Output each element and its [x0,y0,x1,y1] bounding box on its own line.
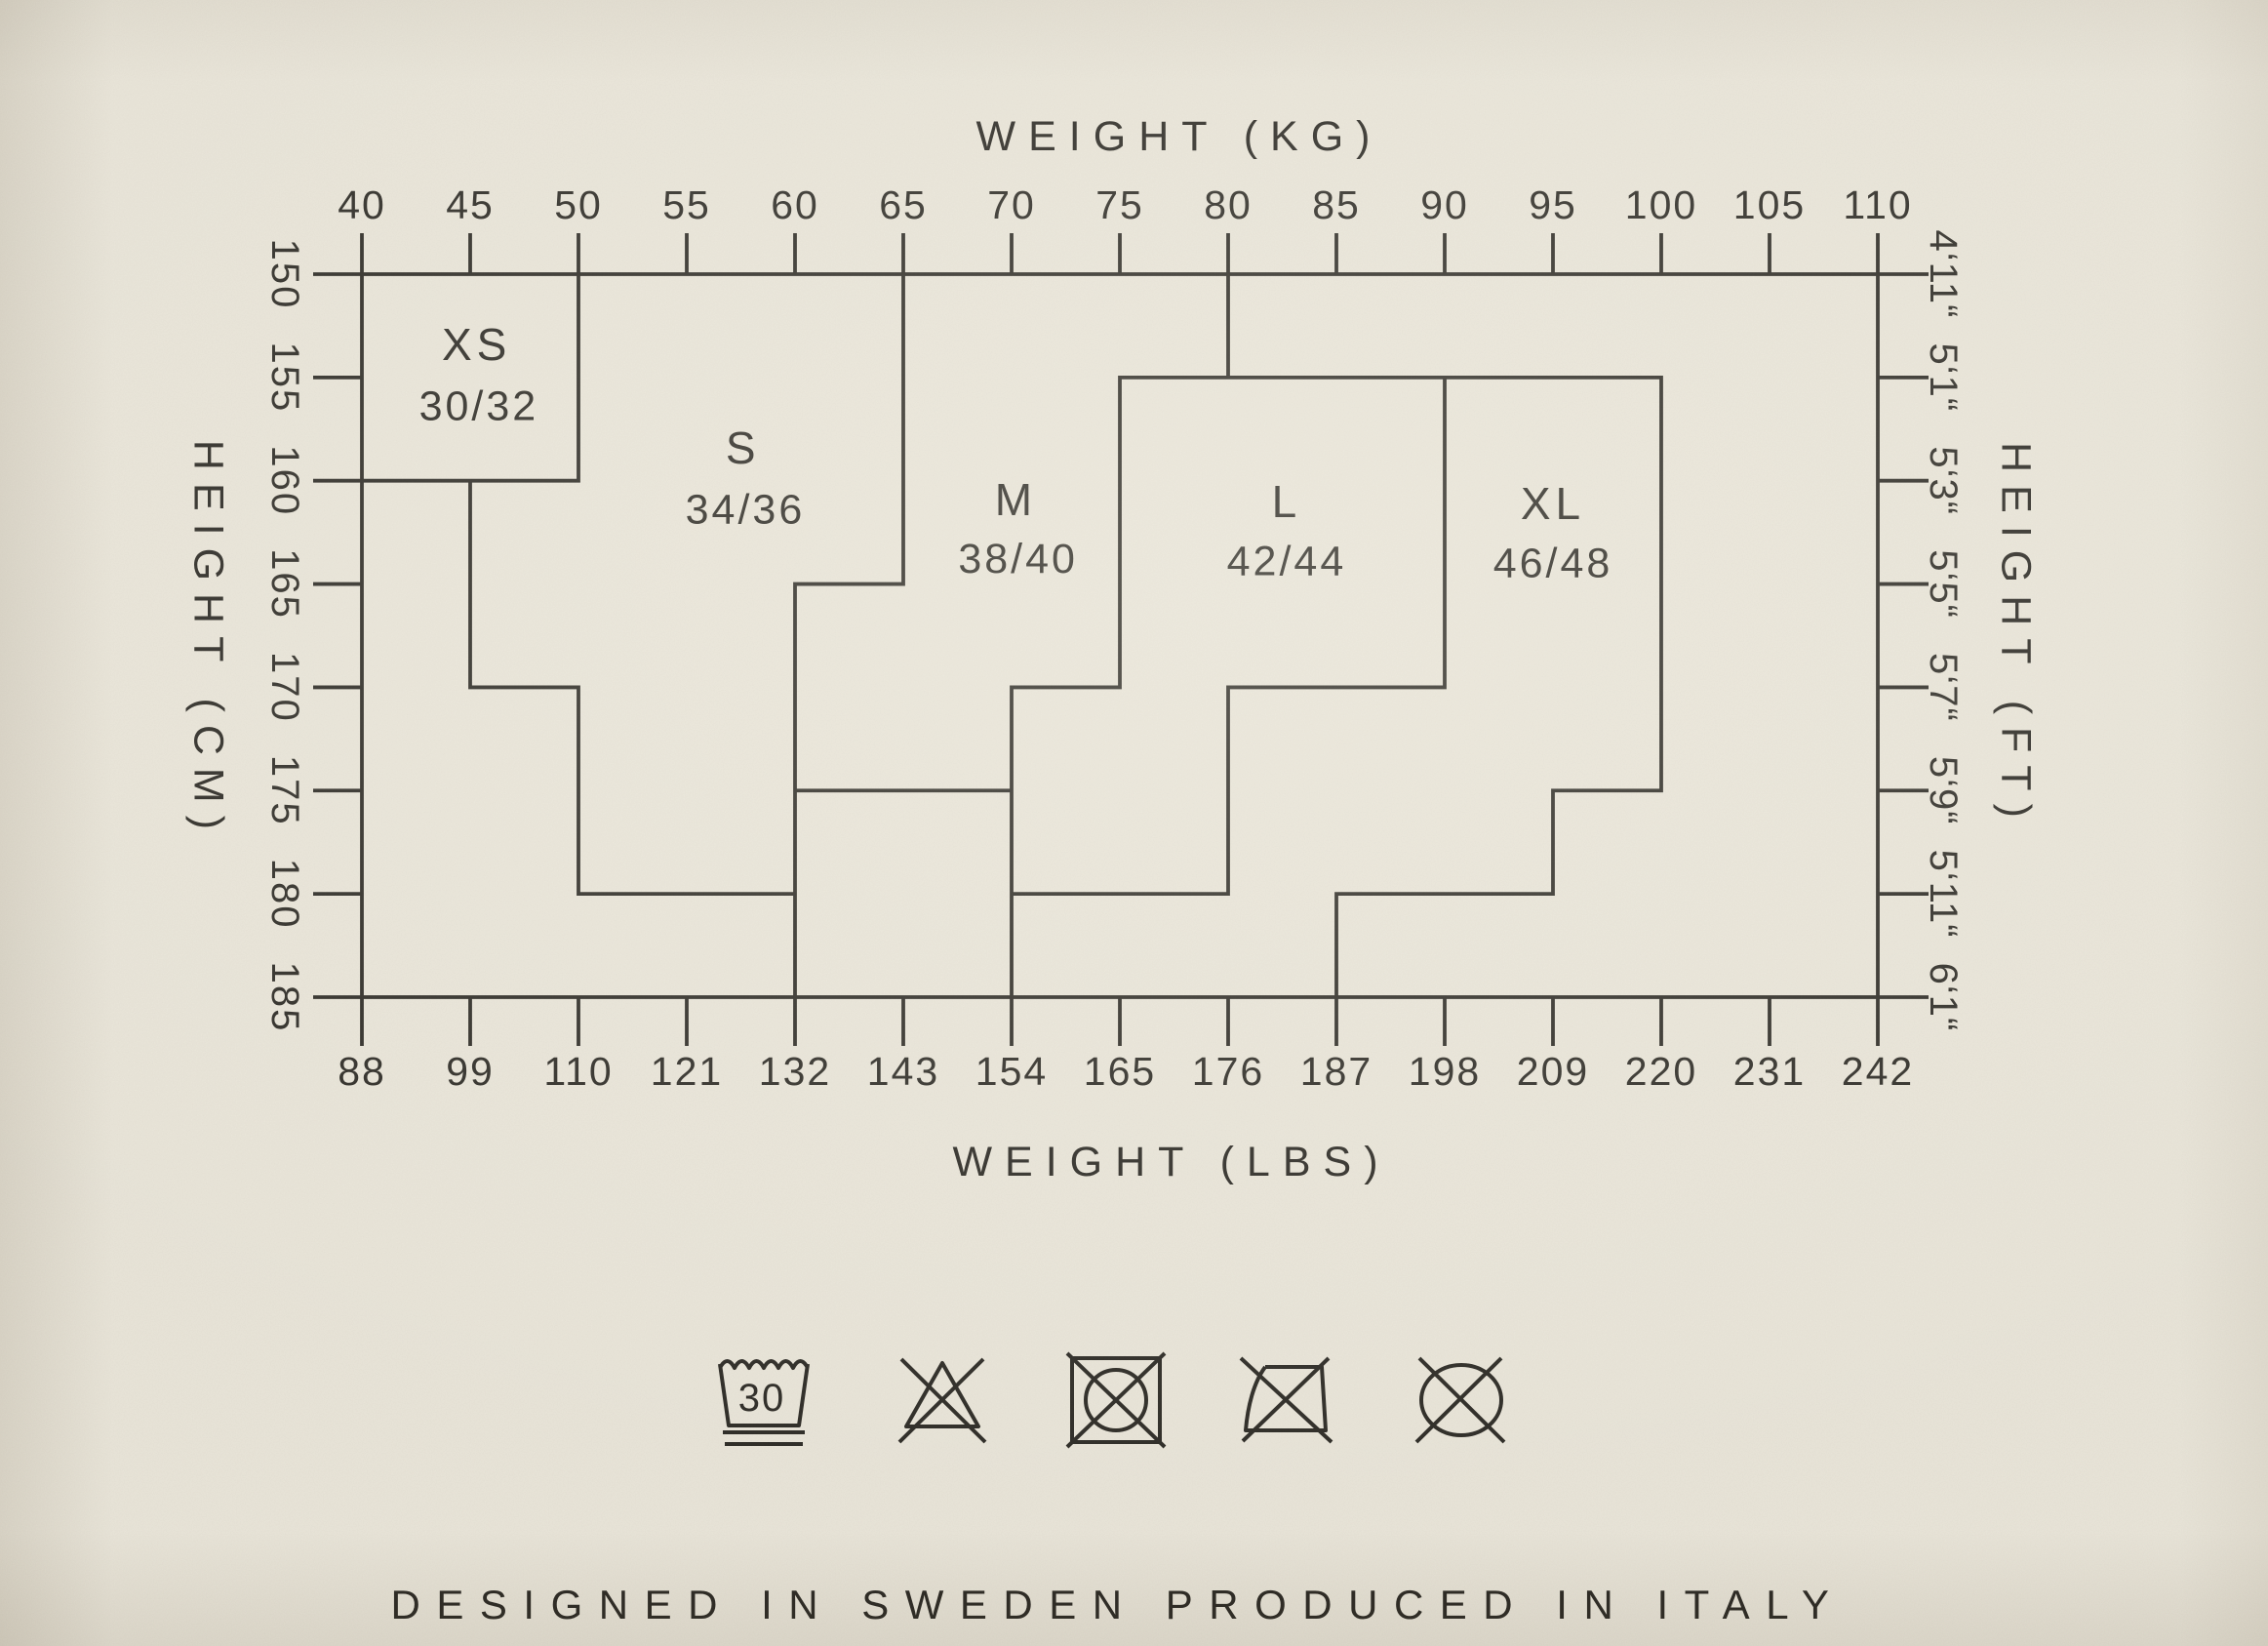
height-ft-axis-title: HEIGHT (FT) [1992,442,2040,830]
size-chart-figure: 4088459950110551216013265143701547516580… [0,0,2268,1646]
footer-text: DESIGNED IN SWEDEN PRODUCED IN ITALY [391,1582,1846,1628]
paper-grain [0,0,2268,1646]
size-chart-page: 4088459950110551216013265143701547516580… [0,0,2268,1646]
weight-lbs-axis-title: WEIGHT (LBS) [952,1139,1390,1186]
height-cm-axis-title: HEIGHT (CM) [184,440,232,842]
weight-kg-axis-title: WEIGHT (KG) [976,113,1383,161]
